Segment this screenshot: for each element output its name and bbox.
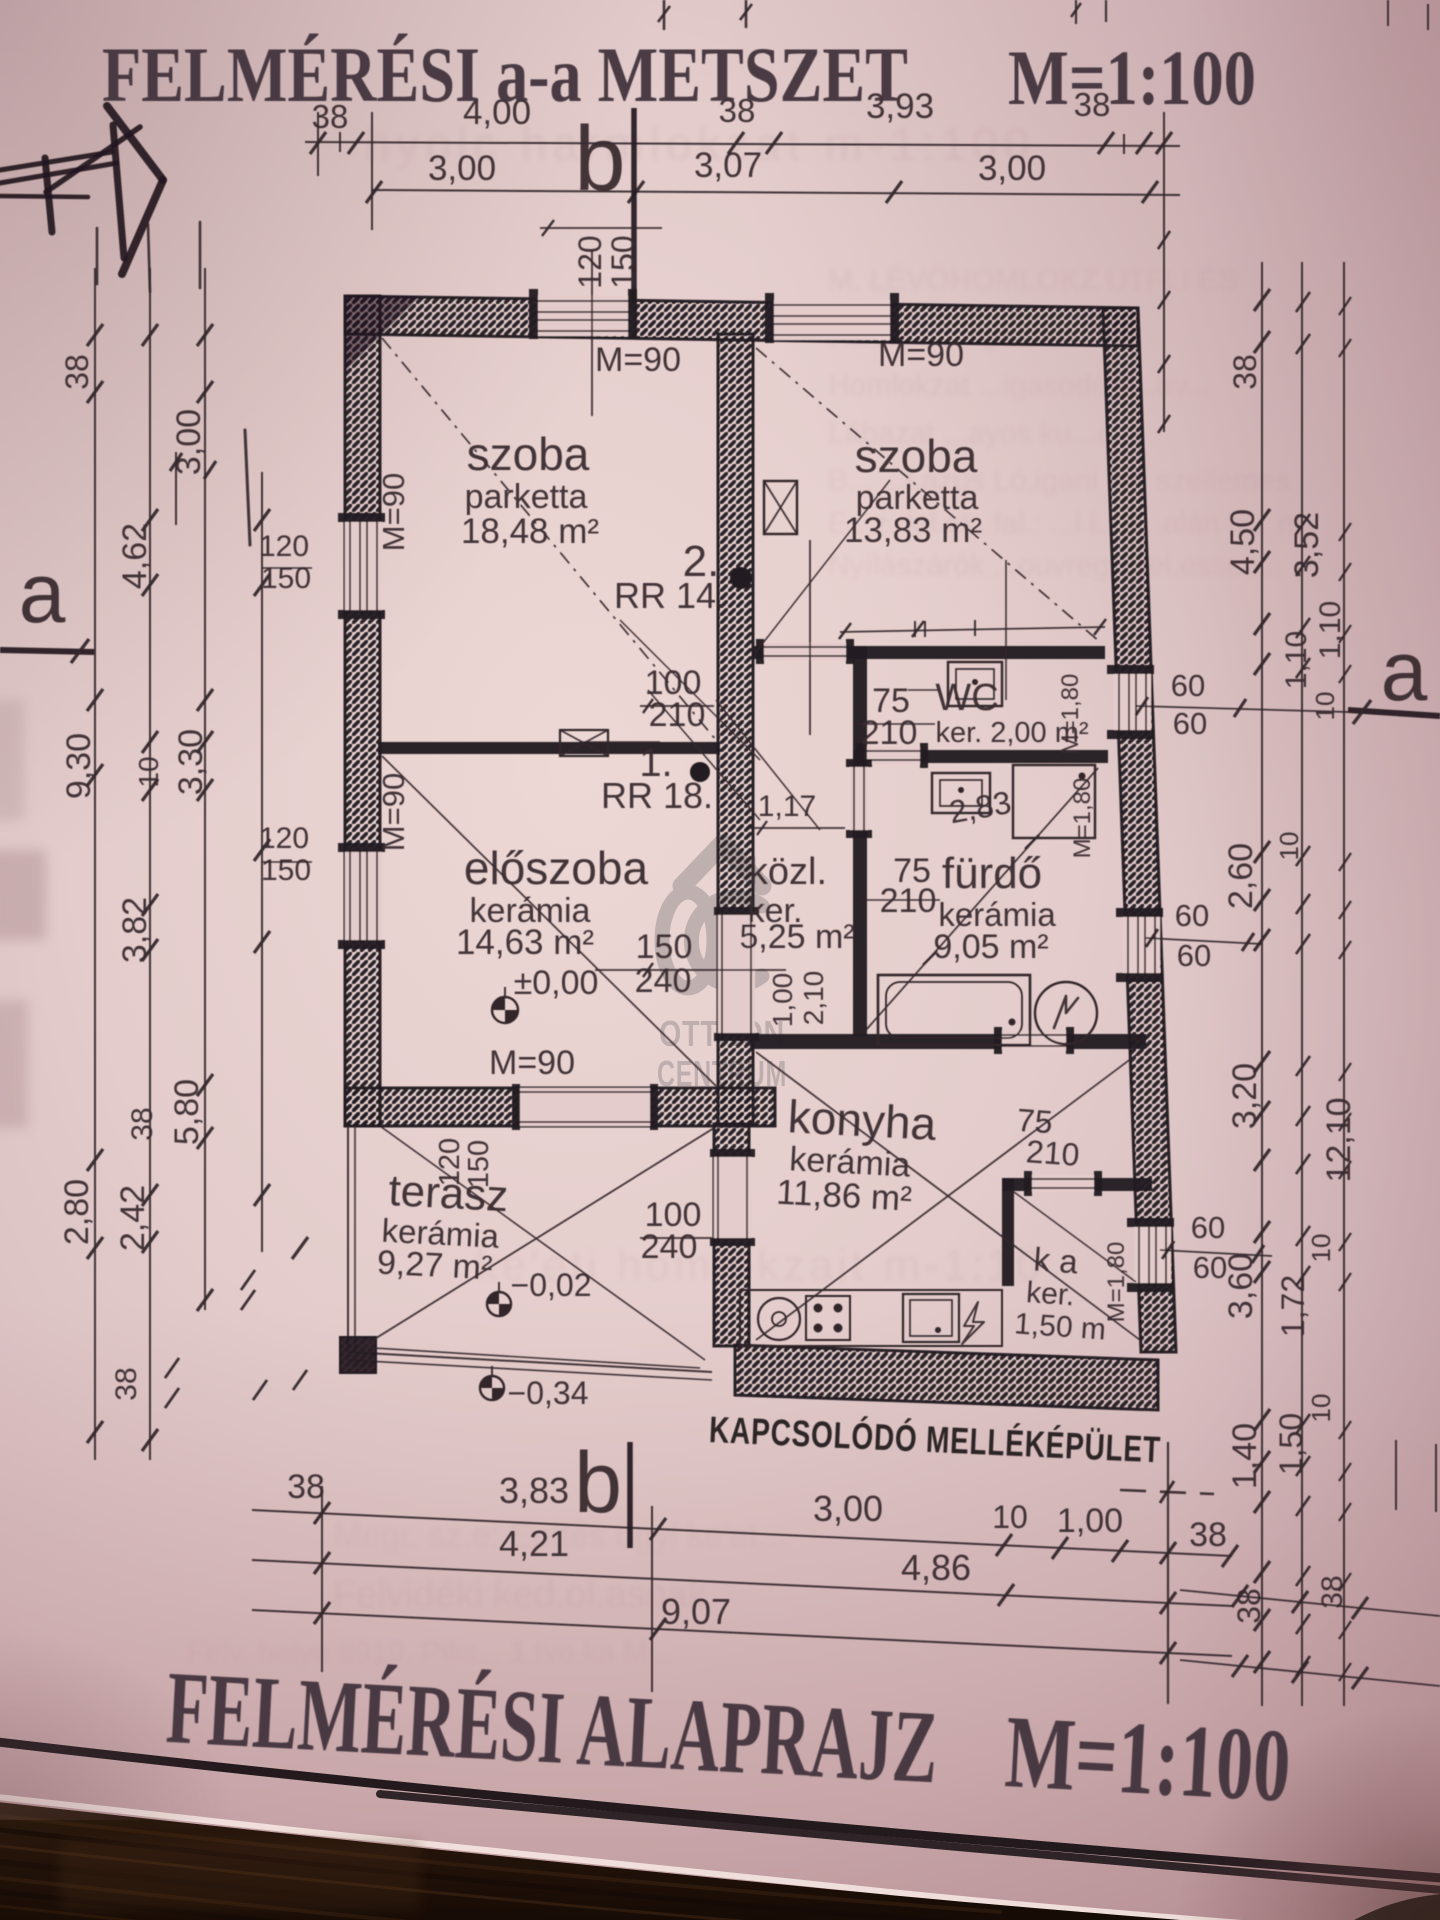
svg-text:18,48 m²: 18,48 m² <box>461 512 599 551</box>
svg-text:2,80: 2,80 <box>58 1179 96 1245</box>
svg-text:9,27 m²: 9,27 m² <box>376 1244 493 1288</box>
svg-text:12,10: 12,10 <box>1320 1097 1358 1182</box>
svg-text:1,00: 1,00 <box>1057 1502 1123 1540</box>
svg-text:4,62: 4,62 <box>116 523 154 589</box>
svg-text:14,63 m²: 14,63 m² <box>456 923 594 962</box>
svg-text:szoba: szoba <box>467 428 590 480</box>
svg-text:M=90: M=90 <box>595 341 681 379</box>
svg-text:60: 60 <box>1175 898 1209 933</box>
svg-text:10: 10 <box>1310 692 1340 721</box>
svg-text:3,83: 3,83 <box>499 1470 569 1511</box>
svg-text:150: 150 <box>261 562 311 595</box>
svg-text:38: 38 <box>1227 354 1263 390</box>
svg-text:3,60: 3,60 <box>1222 1253 1260 1319</box>
svg-text:−0,34: −0,34 <box>508 1375 589 1411</box>
svg-text:9,07: 9,07 <box>661 1591 731 1632</box>
svg-text:120: 120 <box>572 235 608 288</box>
svg-text:2,42: 2,42 <box>114 1185 152 1251</box>
svg-text:210: 210 <box>1025 1133 1081 1173</box>
svg-text:a: a <box>19 546 66 640</box>
svg-text:3,00: 3,00 <box>813 1488 883 1529</box>
svg-text:2,10: 2,10 <box>798 971 829 1026</box>
svg-text:M=1,80: M=1,80 <box>1069 778 1096 859</box>
svg-text:150: 150 <box>463 1140 495 1188</box>
svg-text:4,50: 4,50 <box>1224 509 1262 575</box>
svg-text:10: 10 <box>992 1499 1028 1535</box>
svg-text:38: 38 <box>1189 1516 1227 1554</box>
svg-text:ker.: ker. <box>1025 1276 1076 1312</box>
svg-text:WC: WC <box>935 677 998 719</box>
svg-text:közl.: közl. <box>749 851 827 893</box>
svg-text:210: 210 <box>880 882 937 920</box>
svg-text:szoba: szoba <box>855 430 978 482</box>
svg-text:60: 60 <box>1191 1210 1225 1245</box>
svg-text:M=90: M=90 <box>878 336 964 374</box>
svg-text:10: 10 <box>1306 1394 1336 1423</box>
svg-text:fürdő: fürdő <box>942 849 1042 898</box>
svg-text:−0,02: −0,02 <box>511 1267 592 1303</box>
svg-text:10: 10 <box>133 756 164 787</box>
svg-text:M=90: M=90 <box>376 473 411 551</box>
svg-text:9,05 m²: 9,05 m² <box>933 928 1048 966</box>
svg-text:1,50 m: 1,50 m <box>1013 1307 1107 1346</box>
svg-text:210: 210 <box>649 696 706 734</box>
svg-text:1,10: 1,10 <box>1280 631 1313 689</box>
svg-text:13,83 m²: 13,83 m² <box>844 511 982 550</box>
svg-text:120: 120 <box>259 822 309 855</box>
svg-text:60: 60 <box>1173 706 1207 741</box>
svg-text:3,07: 3,07 <box>694 146 762 185</box>
svg-text:11,86 m²: 11,86 m² <box>775 1173 912 1219</box>
svg-text:3,00: 3,00 <box>428 149 496 188</box>
svg-text:150: 150 <box>636 928 693 966</box>
svg-text:4,86: 4,86 <box>901 1547 971 1588</box>
svg-text:60: 60 <box>1177 938 1211 973</box>
svg-text:M=1,80: M=1,80 <box>1103 1242 1130 1323</box>
svg-text:3,00: 3,00 <box>978 149 1046 188</box>
svg-text:előszoba: előszoba <box>464 842 649 894</box>
svg-text:±0,00: ±0,00 <box>514 964 599 1002</box>
svg-text:38: 38 <box>59 354 95 390</box>
svg-text:60: 60 <box>1171 668 1205 703</box>
svg-text:120: 120 <box>259 530 309 563</box>
svg-text:M=90: M=90 <box>376 773 411 851</box>
svg-text:3,82: 3,82 <box>116 897 154 963</box>
svg-text:5,80: 5,80 <box>168 1079 206 1145</box>
svg-text:M=90: M=90 <box>489 1044 575 1082</box>
svg-text:1,72: 1,72 <box>1275 1275 1311 1337</box>
svg-text:FELMÉRÉSI a-a METSZET: FELMÉRÉSI a-a METSZET <box>102 31 908 118</box>
svg-text:2,60: 2,60 <box>1222 843 1260 909</box>
svg-text:3,20: 3,20 <box>1226 1063 1264 1129</box>
svg-text:240: 240 <box>641 1228 698 1266</box>
svg-text:1,00: 1,00 <box>767 973 798 1028</box>
svg-text:9,30: 9,30 <box>60 733 98 799</box>
svg-text:3,30: 3,30 <box>172 729 210 795</box>
svg-text:38: 38 <box>110 1367 143 1400</box>
svg-text:parketta: parketta <box>465 478 588 516</box>
svg-text:b: b <box>574 1435 622 1531</box>
svg-text:Nyílászárók ...ouvreg sz: Nyílászárók ...ouvreg szel.essec... <box>828 549 1283 582</box>
svg-text:150: 150 <box>605 235 641 288</box>
svg-text:3,52: 3,52 <box>1288 512 1326 578</box>
svg-text:RR 18.: RR 18. <box>601 775 713 816</box>
svg-text:10: 10 <box>1274 832 1304 861</box>
svg-text:38: 38 <box>126 1107 159 1140</box>
svg-text:1,10: 1,10 <box>1314 601 1347 659</box>
svg-text:M. LÉVŐHOMLOKZ UTFLI ÉS: M. LÉVŐHOMLOKZ UTFLI ÉS <box>828 264 1238 297</box>
svg-text:210: 210 <box>861 714 918 752</box>
svg-text:1,40: 1,40 <box>1226 1423 1264 1489</box>
svg-text:M=1:100: M=1:100 <box>1008 34 1256 121</box>
svg-text:10: 10 <box>1306 1234 1336 1263</box>
svg-text:k a: k a <box>1033 1240 1080 1280</box>
svg-text:120: 120 <box>434 1138 466 1186</box>
svg-text:1,50: 1,50 <box>1273 1413 1309 1475</box>
svg-text:150: 150 <box>261 854 311 887</box>
svg-text:5,25 m²: 5,25 m² <box>739 918 854 956</box>
svg-text:M=1,80: M=1,80 <box>1057 674 1084 755</box>
svg-text:a: a <box>1381 624 1428 718</box>
svg-text:RR 14.: RR 14. <box>614 575 726 616</box>
svg-text:4,21: 4,21 <box>499 1523 569 1564</box>
svg-text:b: b <box>574 108 625 210</box>
svg-text:1,17: 1,17 <box>758 790 816 823</box>
svg-text:240: 240 <box>635 962 692 1000</box>
